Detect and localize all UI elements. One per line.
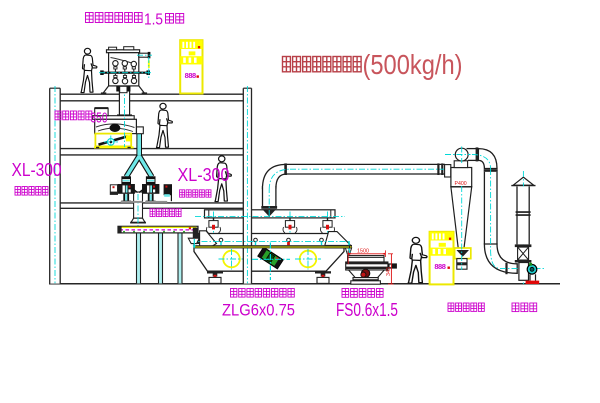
svg-text:345: 345: [386, 267, 392, 276]
svg-text:1.5: 1.5: [144, 12, 163, 29]
svg-text:XL-300: XL-300: [178, 165, 230, 185]
svg-text:XL-300: XL-300: [12, 160, 62, 180]
svg-text:1500: 1500: [357, 249, 369, 255]
svg-text:FS0.6x1.5: FS0.6x1.5: [336, 300, 398, 320]
svg-text:888: 888: [185, 71, 196, 80]
svg-text:ZLG6x0.75: ZLG6x0.75: [222, 301, 295, 320]
svg-text:P400: P400: [455, 181, 467, 187]
svg-text:(500kg/h): (500kg/h): [363, 49, 463, 80]
svg-text:350: 350: [91, 111, 108, 127]
svg-text:888: 888: [434, 262, 445, 271]
